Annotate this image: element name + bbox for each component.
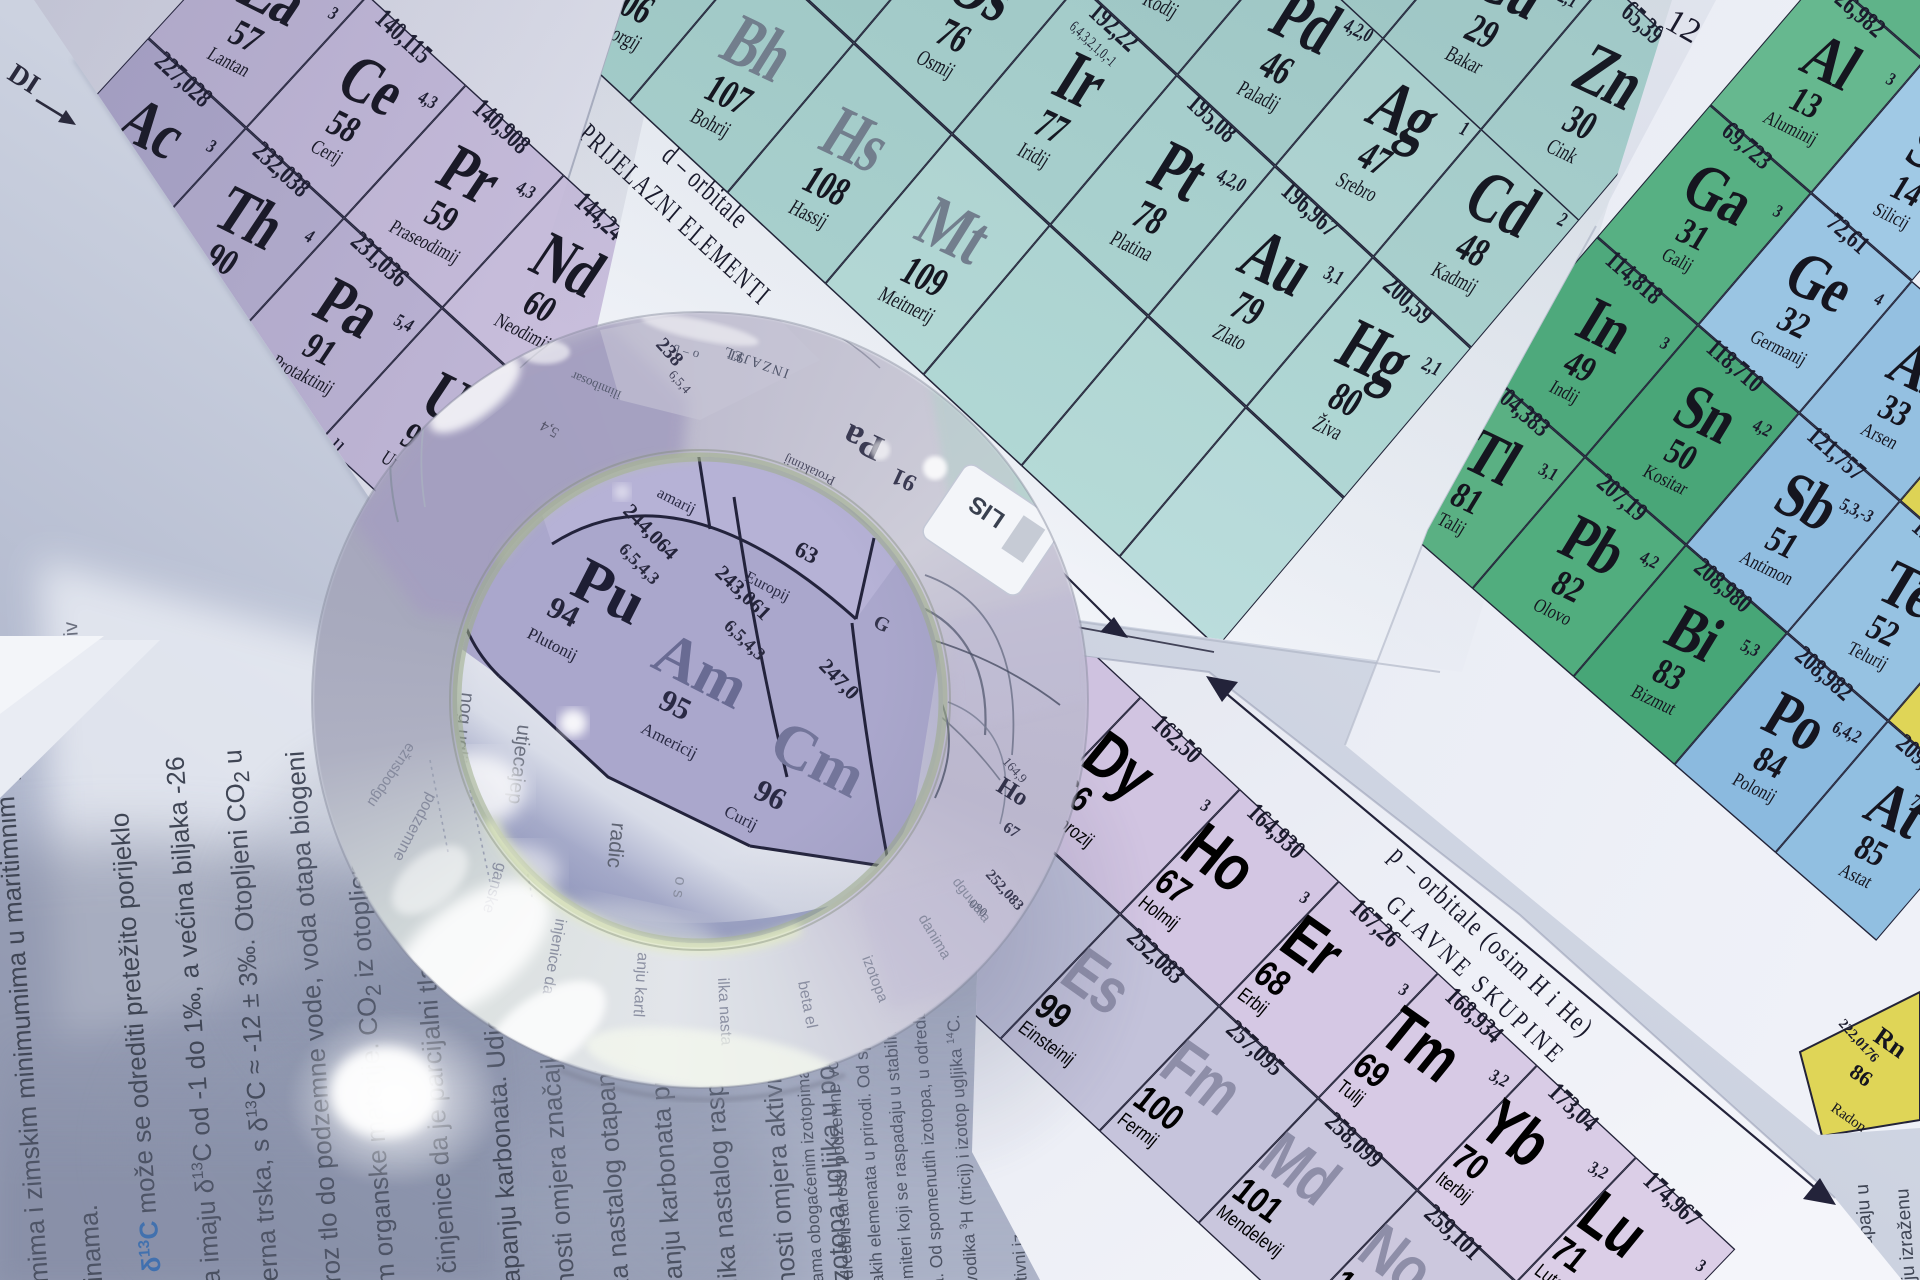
svg-text:ganske: ganske <box>517 961 545 1018</box>
svg-text:radic: radic <box>602 821 630 869</box>
svg-text:anju k: anju k <box>688 1009 712 1055</box>
svg-text:injenice: injenice <box>606 991 635 1051</box>
svg-text:o s: o s <box>669 875 689 899</box>
